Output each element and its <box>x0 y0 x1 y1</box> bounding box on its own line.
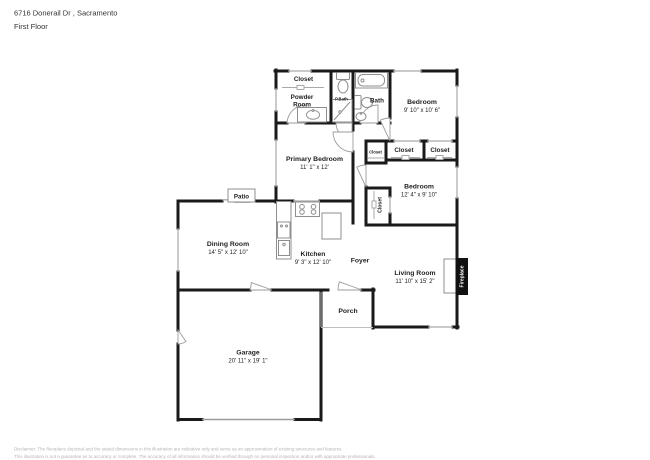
room-label-patio: Patio <box>234 194 249 201</box>
room-label-primary-bath: P.Bath <box>335 97 348 102</box>
header-address: 6716 Donerail Dr , Sacramento <box>14 9 117 18</box>
door-bedroom-mid <box>357 165 366 187</box>
shower-icon <box>333 100 353 123</box>
vanity-sink-icon <box>298 108 327 123</box>
closet-hanger <box>436 156 443 160</box>
closet-hanger <box>402 156 409 160</box>
room-label-closet-left: Closet <box>394 147 414 154</box>
kitchen-sink-icon <box>279 241 290 256</box>
floorplan-svg: 6716 Donerail Dr , Sacramento First Floo… <box>0 0 650 460</box>
room-dims-kitchen: 9' 3" x 12' 10" <box>295 260 331 266</box>
sink-icon <box>356 113 366 121</box>
labels: 6716 Donerail Dr , Sacramento First Floo… <box>14 9 466 460</box>
closet-hanger <box>372 201 376 208</box>
toilet-icon <box>337 73 350 94</box>
stove-icon <box>296 202 320 217</box>
door-garage-interior <box>250 283 272 291</box>
fireplace-label: Fireplace <box>460 265 466 287</box>
room-label-dining-room: Dining Room <box>207 241 249 248</box>
room-dims-primary-bedroom: 11' 1" x 12' <box>300 165 329 171</box>
room-label-living-room: Living Room <box>394 270 435 277</box>
kitchen-counter <box>322 213 341 239</box>
room-label-bedroom-top: Bedroom <box>407 99 437 106</box>
room-label-kitchen: Kitchen <box>301 251 326 258</box>
room-label-bath: Bath <box>370 98 384 105</box>
room-label-powder-2: Room <box>293 102 311 109</box>
bathtub-icon <box>356 73 388 89</box>
disclaimer-line1: Disclaimer: The floorplans depicted and … <box>14 447 343 452</box>
disclaimer-line2: This illustration is not a guarantee as … <box>14 454 376 459</box>
fireplace-hearth <box>444 259 456 293</box>
room-label-porch: Porch <box>338 308 357 315</box>
closet-hanger <box>297 86 304 90</box>
room-label-powder-1: Powder <box>291 94 314 101</box>
room-dims-dining-room: 14' 5" x 12' 10" <box>208 250 248 256</box>
room-label-garage: Garage <box>236 350 260 357</box>
header-floor: First Floor <box>14 22 48 31</box>
room-label-closet-hall: Closet <box>369 150 382 155</box>
room-label-closet-right: Closet <box>430 147 450 154</box>
door-bedroom-top <box>380 118 390 141</box>
room-dims-living-room: 11' 10" x 15' 2" <box>395 279 434 285</box>
door-garage-side <box>178 330 186 344</box>
room-label-closet-top: Closet <box>294 76 314 83</box>
room-label-foyer: Foyer <box>351 258 370 265</box>
room-label-closet-bedroom: Closet <box>378 197 384 213</box>
room-dims-bedroom-top: 9' 10" x 10' 6" <box>404 108 440 114</box>
room-dims-bedroom-mid: 12' 4" x 9' 10" <box>401 193 437 199</box>
refrigerator-icon <box>278 222 291 238</box>
room-label-bedroom-mid: Bedroom <box>404 184 434 191</box>
room-dims-garage: 20' 11" x 19' 1" <box>228 359 267 365</box>
room-label-primary-bedroom: Primary Bedroom <box>286 156 343 163</box>
floorplan-page: 6716 Donerail Dr , Sacramento First Floo… <box>0 0 650 460</box>
door-front-entry <box>338 282 362 290</box>
door-primary-bedroom <box>333 132 353 152</box>
